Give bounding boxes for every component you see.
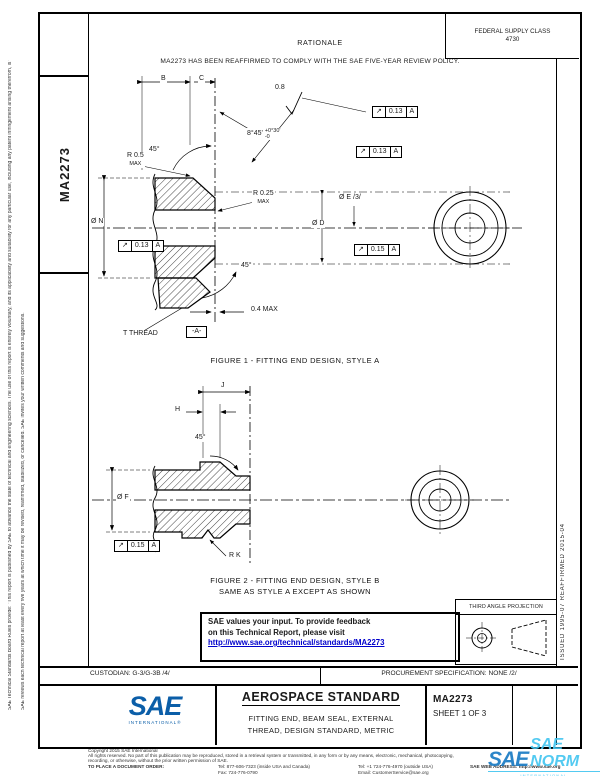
fig1-angle-minus: -0 — [265, 134, 281, 140]
fig1-angle-main: 8°45' — [247, 130, 263, 138]
feedback-line1: SAE values your input. To provide feedba… — [208, 617, 452, 628]
fcf-datum: A — [390, 146, 403, 158]
fcf-datum: A — [388, 244, 401, 256]
fig1-fcf-3: ↗ 0.13 A — [118, 240, 164, 252]
tel-inside: Tel: 877-606-7323 (inside USA and Canada… — [218, 764, 310, 770]
email-address: Email: CustomerService@sae.org — [358, 770, 429, 776]
third-angle-symbol-icon — [456, 615, 554, 662]
watermark-text: SAE NORM — [530, 736, 600, 770]
feedback-line2: on this Technical Report, please visit — [208, 628, 452, 639]
runout-symbol: ↗ — [118, 240, 132, 252]
number-cell: MA2273 SHEET 1 OF 3 — [433, 694, 486, 718]
fig1-dim-b: B — [160, 75, 167, 83]
fig1-r-seal: R 0.25MAX — [252, 190, 275, 206]
standard-type: AEROSPACE STANDARD — [242, 690, 400, 706]
standard-title-line2: THREAD, DESIGN STANDARD, METRIC — [217, 726, 425, 735]
left-column-divider — [88, 12, 89, 666]
fig2-dim-j: J — [220, 382, 226, 390]
runout-symbol: ↗ — [372, 106, 386, 118]
rationale-body: MA2273 HAS BEEN REAFFIRMED TO COMPLY WIT… — [90, 58, 530, 65]
fig1-datum-a: -A- — [186, 326, 207, 338]
figure-2-caption: FIGURE 2 - FITTING END DESIGN, STYLE B — [90, 576, 500, 585]
title-cell: AEROSPACE STANDARD FITTING END, BEAM SEA… — [217, 688, 425, 735]
fcf-datum: A — [152, 240, 165, 252]
fig2-dim-h: H — [174, 406, 181, 414]
drawing-sheet: SAE Technical Standards Board Rules prov… — [0, 0, 600, 776]
fcf-datum: A — [148, 540, 161, 552]
order-label: TO PLACE A DOCUMENT ORDER: — [88, 764, 164, 770]
standard-title-line1: FITTING END, BEAM SEAL, EXTERNAL — [217, 714, 425, 723]
fig2-r-k: R K — [228, 552, 242, 560]
doc-number-tab: MA2273 — [40, 75, 88, 274]
fig1-angle-tolerance: 8°45' +0°30' -0 — [246, 128, 281, 140]
sheet-number: SHEET 1 OF 3 — [433, 709, 486, 718]
projection-title: THIRD ANGLE PROJECTION — [456, 600, 556, 615]
fig1-fcf-4: ↗ 0.15 A — [354, 244, 400, 256]
sae-norm-watermark: SAE SAE NORM INTERNATIONAL — [488, 736, 600, 776]
fsc-box: FEDERAL SUPPLY CLASS 4730 — [445, 14, 579, 59]
doc-number-vertical: MA2273 — [57, 147, 72, 202]
fcf-tolerance: 0.13 — [385, 106, 407, 118]
tel-outside: Tel: +1 724-776-4970 (outside USA) — [358, 764, 433, 770]
fcf-tolerance: 0.13 — [131, 240, 153, 252]
titleblock-top-rule — [38, 666, 578, 668]
titleblock-doc-number: MA2273 — [433, 694, 486, 705]
figure-2: J H 45° Ø F R K ↗ 0.15 A FIGURE 2 - FITT… — [90, 380, 560, 610]
fig1-angle-stack: +0°30' -0 — [265, 128, 281, 140]
feedback-box: SAE values your input. To provide feedba… — [200, 612, 460, 662]
fig1-thread-label: T THREAD — [122, 330, 159, 338]
fig1-fcf-2: ↗ 0.13 A — [356, 146, 402, 158]
figure-1-caption: FIGURE 1 - FITTING END DESIGN, STYLE A — [90, 356, 500, 365]
fcf-tolerance: 0.13 — [369, 146, 391, 158]
fig1-r-max: R 0.5MAX — [126, 152, 145, 168]
fig1-dia-d: Ø D — [311, 220, 325, 228]
fcf-datum: A — [406, 106, 419, 118]
sae-logo: SAE INTERNATIONAL® — [110, 692, 200, 725]
fsc-label: FEDERAL SUPPLY CLASS — [475, 28, 551, 36]
titleblock-mid-rule — [38, 684, 578, 686]
fcf-tolerance: 0.15 — [367, 244, 389, 256]
fig1-dia-e: Ø E /3/ — [338, 194, 362, 202]
rationale-heading: RATIONALE — [90, 38, 550, 47]
fig2-fcf: ↗ 0.15 A — [114, 540, 160, 552]
runout-symbol: ↗ — [356, 146, 370, 158]
margin-disclaimer-1: SAE Technical Standards Board Rules prov… — [8, 60, 19, 710]
fig1-angle-top: 45° — [148, 146, 161, 154]
fax-number: Fax: 724-776-0790 — [218, 770, 258, 776]
watermark-sub: INTERNATIONAL — [488, 771, 600, 776]
feedback-url-link[interactable]: http://www.sae.org/technical/standards/M… — [208, 638, 385, 647]
runout-symbol: ↗ — [114, 540, 128, 552]
custodian: CUSTODIAN: G-3/G-3B /4/ — [90, 670, 170, 677]
fig1-dim-c: C — [198, 75, 205, 83]
fig2-dia-f: Ø F — [116, 494, 130, 502]
procurement-spec: PROCUREMENT SPECIFICATION: NONE /2/ — [320, 670, 578, 677]
issued-reaffirmed-vertical: ISSUED 1995-07 REAFFIRMED 2015-04 — [560, 400, 576, 660]
projection-box: THIRD ANGLE PROJECTION — [455, 599, 557, 665]
fcf-tolerance: 0.15 — [127, 540, 149, 552]
figure-2-subcaption: SAME AS STYLE A EXCEPT AS SHOWN — [90, 587, 500, 596]
fig1-fcf-1: ↗ 0.13 A — [372, 106, 418, 118]
fig1-dia-n: Ø N — [90, 218, 104, 226]
title-cell-divider — [425, 684, 427, 745]
watermark-sae-logo: SAE — [488, 750, 528, 770]
fig1-surface-finish: 0.8 — [274, 84, 286, 92]
margin-disclaimer-2: SAE reviews each technical report at lea… — [21, 60, 32, 710]
fig2-angle: 45° — [194, 434, 207, 442]
sae-logo-text: SAE — [110, 692, 200, 720]
sae-logo-sub: INTERNATIONAL® — [110, 720, 200, 725]
fig1-flat-max: 0.4 MAX — [250, 306, 279, 314]
fig1-angle-bottom: 45° — [240, 262, 253, 270]
figure-1: B C 0.8 8°45' +0°30' -0 R 0.5MAX 45° Ø N… — [90, 70, 560, 380]
runout-symbol: ↗ — [354, 244, 368, 256]
